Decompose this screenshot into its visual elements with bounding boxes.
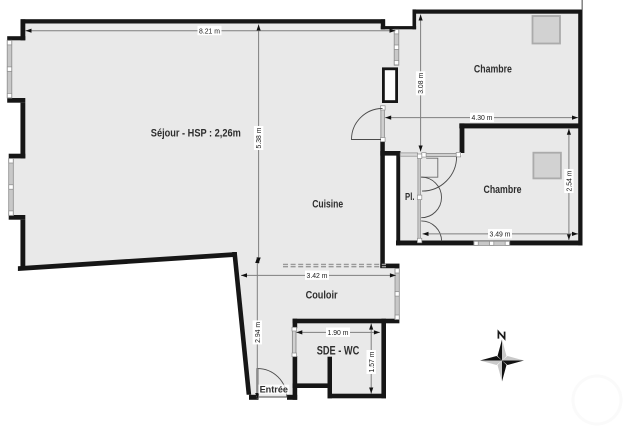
svg-text:SDE - WC: SDE - WC <box>317 345 360 357</box>
svg-text:2.54 m: 2.54 m <box>565 170 574 191</box>
svg-text:3.49 m: 3.49 m <box>490 230 511 239</box>
svg-text:3.08 m: 3.08 m <box>416 73 425 94</box>
svg-text:1.90 m: 1.90 m <box>328 328 349 337</box>
svg-text:1.57 m: 1.57 m <box>367 351 376 372</box>
svg-text:8.21 m: 8.21 m <box>199 26 220 35</box>
svg-text:Entrée: Entrée <box>260 385 288 396</box>
svg-text:2.94 m: 2.94 m <box>253 322 262 343</box>
svg-text:5.38 m: 5.38 m <box>254 127 263 148</box>
svg-text:4.30 m: 4.30 m <box>472 113 493 122</box>
svg-text:Pl.: Pl. <box>405 192 415 203</box>
svg-text:Couloir: Couloir <box>306 290 339 302</box>
svg-text:Séjour - HSP : 2,26m: Séjour - HSP : 2,26m <box>151 128 241 140</box>
svg-text:Chambre: Chambre <box>484 184 522 196</box>
svg-text:Chambre: Chambre <box>474 64 512 76</box>
svg-text:Cuisine: Cuisine <box>312 199 343 211</box>
svg-text:3.42 m: 3.42 m <box>307 271 328 280</box>
